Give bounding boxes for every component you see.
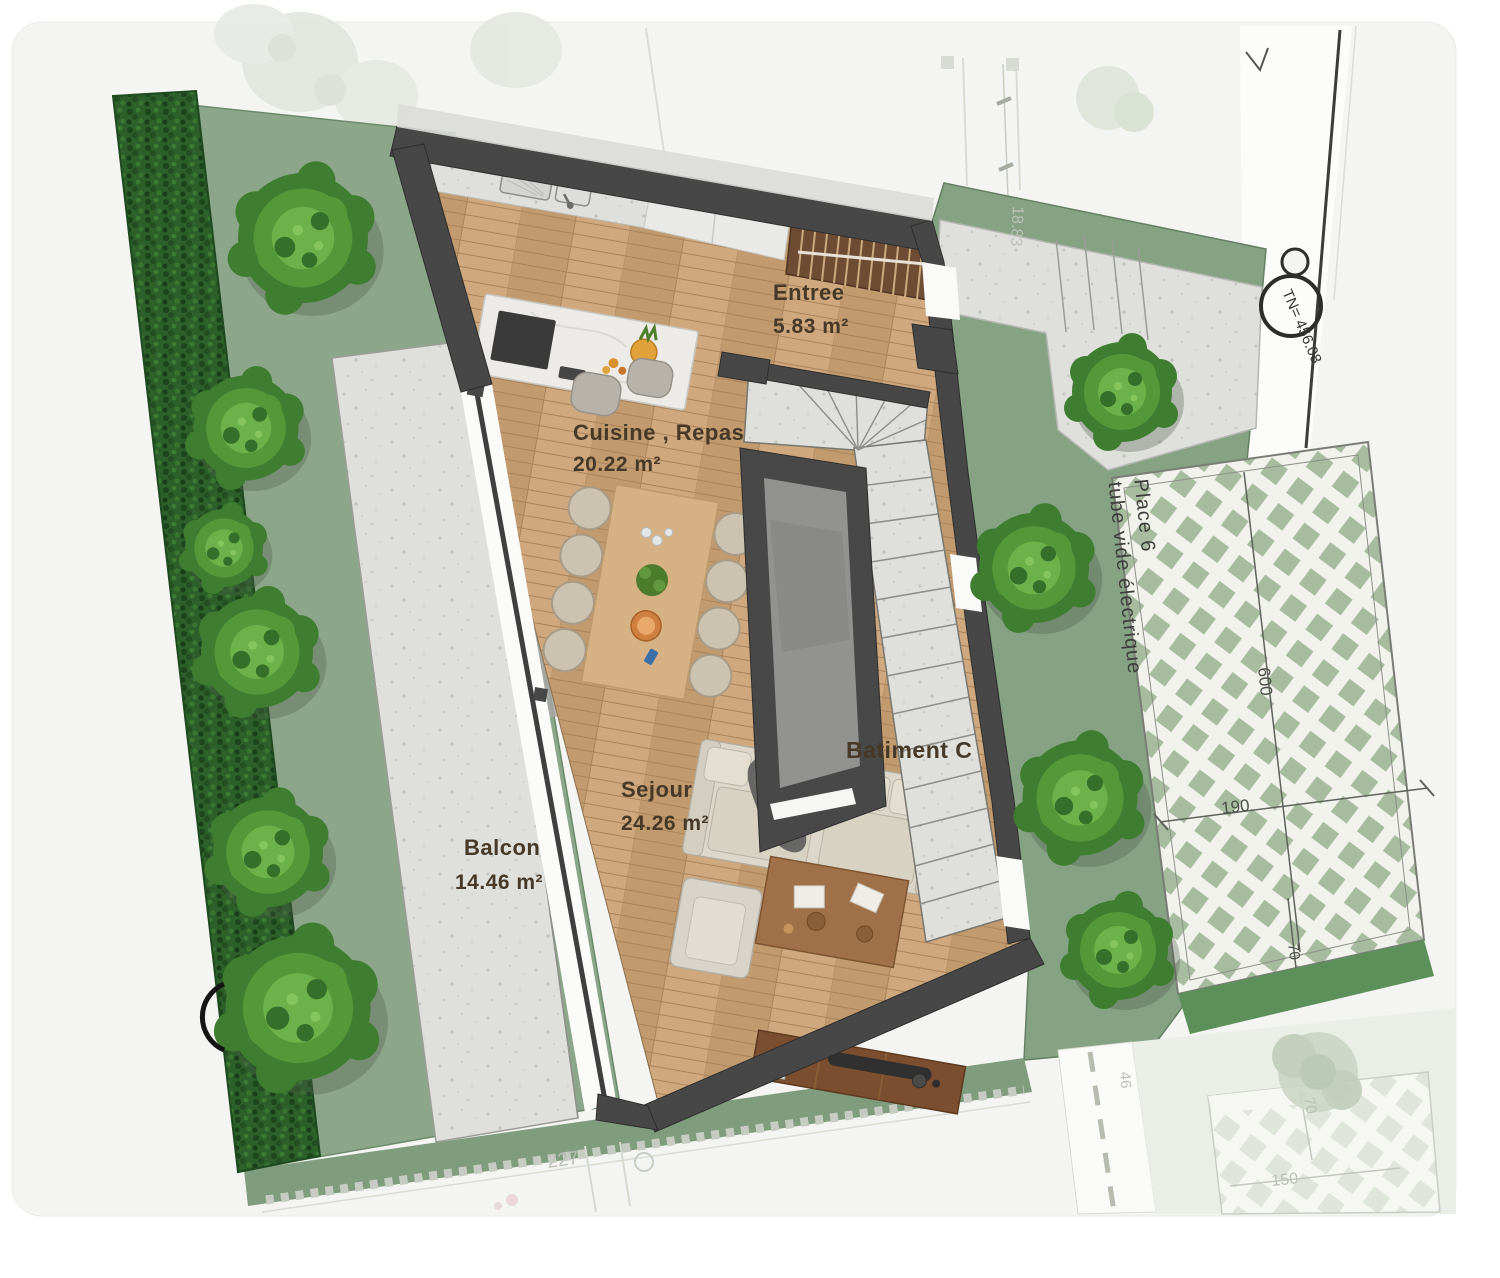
room-label-entree: Entree	[773, 280, 844, 305]
room-area-entree: 5.83 m²	[773, 315, 849, 338]
floor-plan-canvas: Entree 5.83 m² Cuisine , Repas 20.22 m² …	[0, 0, 1500, 1278]
book-icon	[794, 886, 824, 908]
dim-150: 150	[1271, 1170, 1299, 1190]
room-area-balcon: 14.46 m²	[455, 871, 543, 894]
dim-600: 600	[1254, 666, 1276, 696]
dim-1883: 18.83	[1007, 206, 1026, 247]
wall-stair-corner	[912, 324, 958, 374]
tv-screen-icon	[490, 310, 556, 369]
armchair	[669, 877, 763, 980]
room-label-cuisine: Cuisine , Repas	[573, 420, 744, 445]
dim-46: 46	[1116, 1071, 1134, 1089]
dim-227: 227	[546, 1148, 580, 1173]
entry-door-gap	[922, 262, 960, 320]
dim-190: 190	[1220, 796, 1250, 818]
room-label-sejour: Sejour	[621, 777, 692, 802]
dim-70: 70	[1284, 942, 1303, 961]
elevator-shaft	[740, 448, 886, 852]
room-area-sejour: 24.26 m²	[621, 812, 709, 835]
room-label-balcon: Balcon	[464, 835, 540, 860]
floor-plan-svg: Entree 5.83 m² Cuisine , Repas 20.22 m² …	[0, 0, 1500, 1278]
survey-marker-icon	[1282, 249, 1308, 275]
building-label: Batiment C	[846, 737, 972, 763]
room-area-cuisine: 20.22 m²	[573, 453, 661, 476]
dim-70b: 70	[1300, 1096, 1320, 1115]
